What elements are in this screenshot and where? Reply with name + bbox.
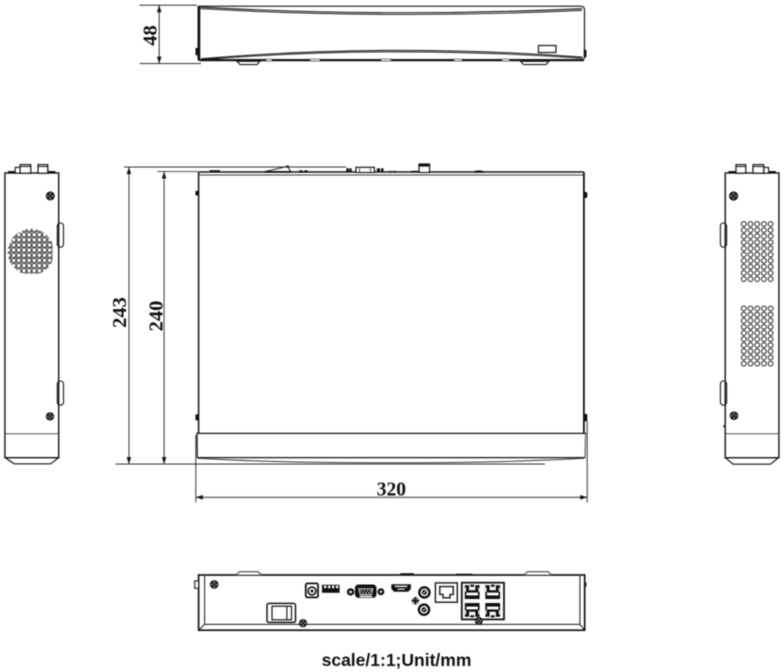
svg-text:243: 243 (109, 297, 131, 328)
svg-text:scale/1:1;Unit/mm: scale/1:1;Unit/mm (322, 650, 472, 670)
svg-text:320: 320 (377, 480, 406, 501)
svg-text:240: 240 (146, 301, 168, 332)
svg-text:48: 48 (140, 25, 162, 46)
